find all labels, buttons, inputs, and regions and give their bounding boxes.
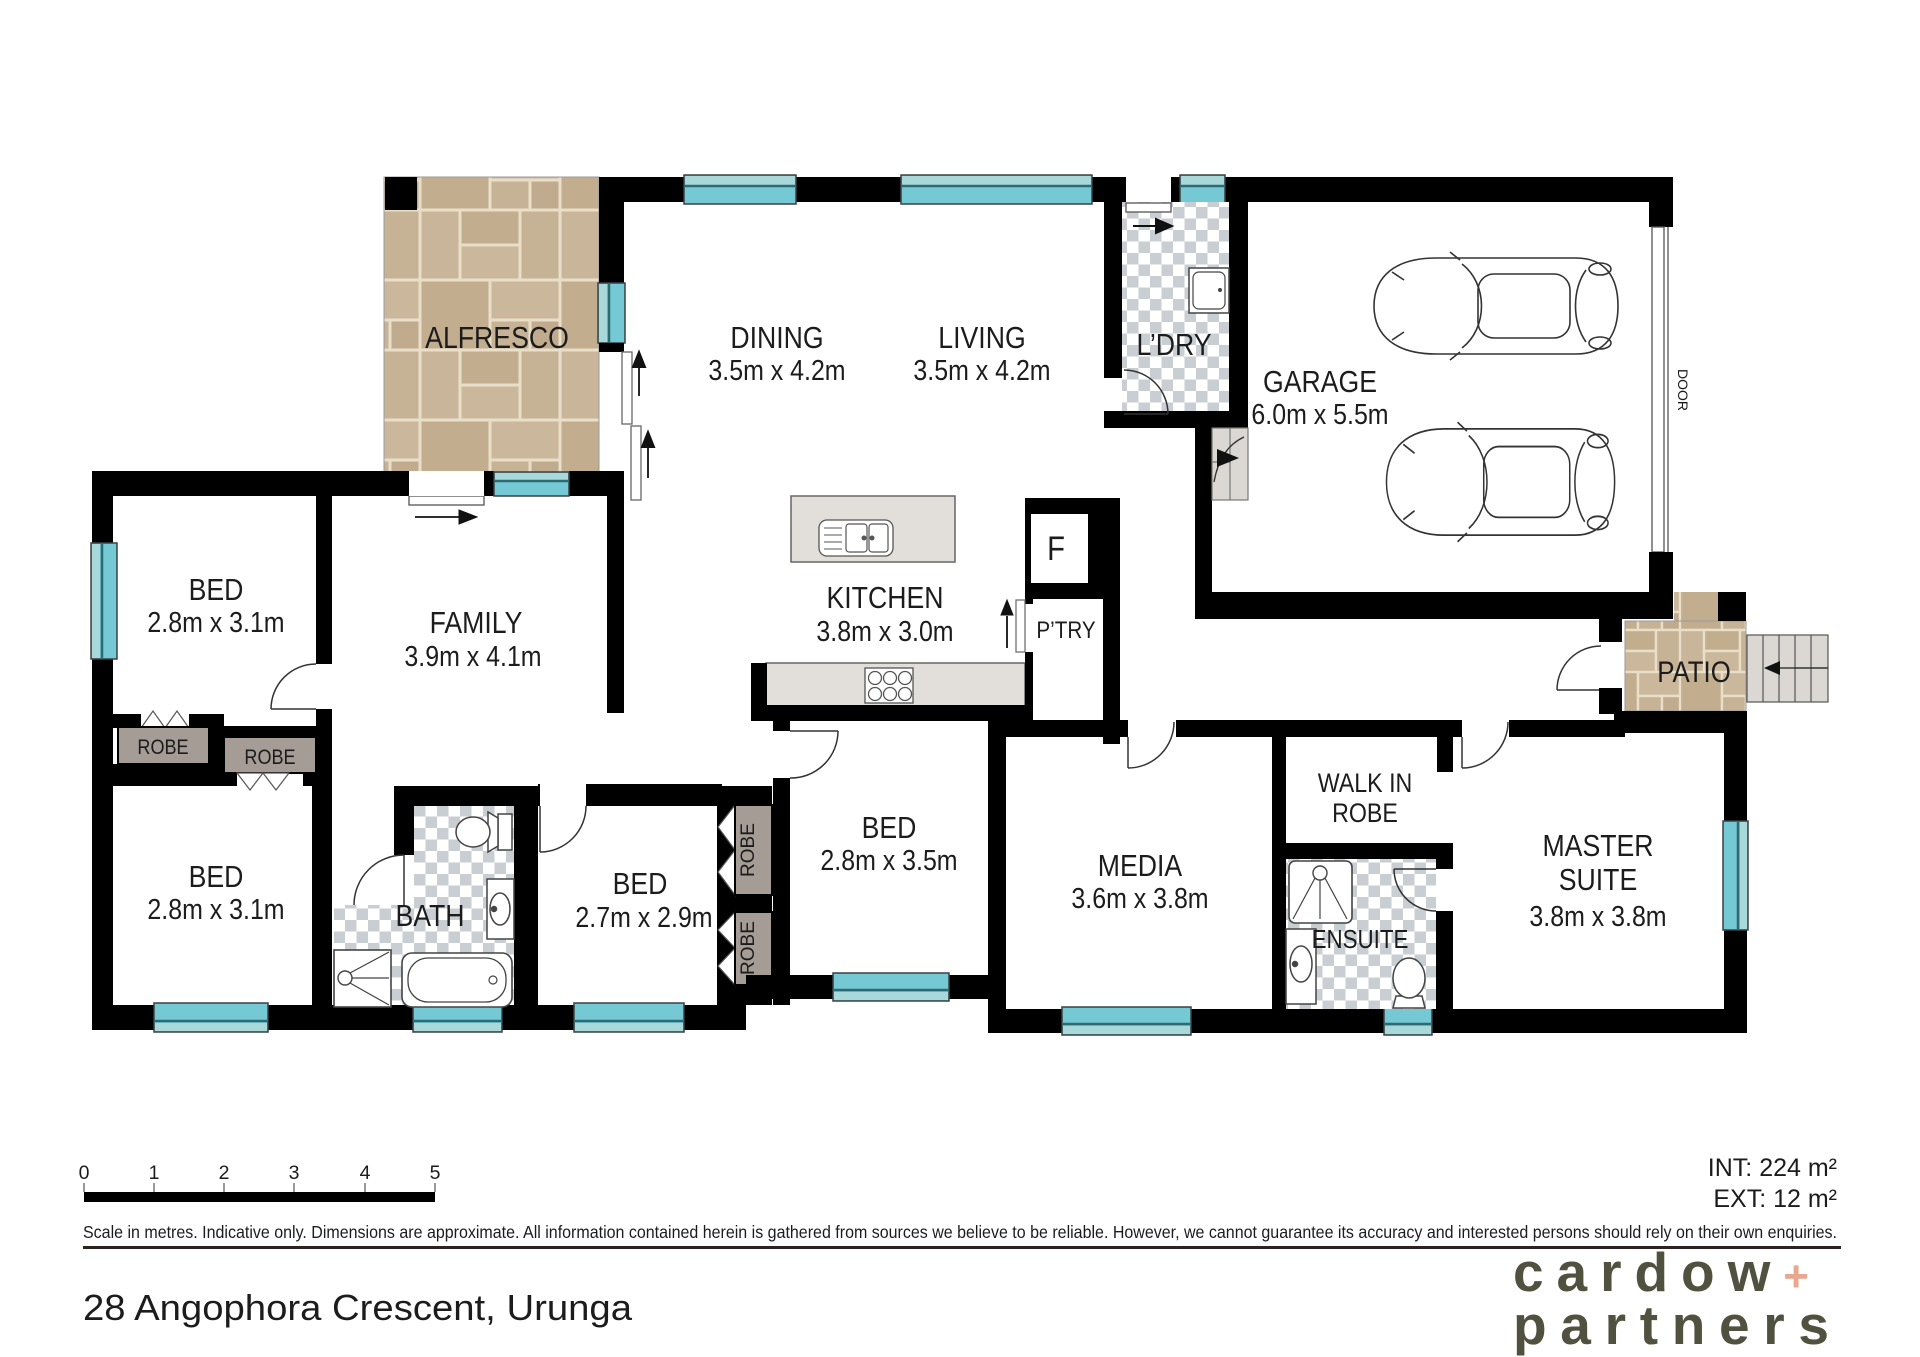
svg-text:5: 5 [430, 1162, 441, 1184]
svg-text:2: 2 [219, 1162, 230, 1184]
svg-text:SUITE: SUITE [1559, 863, 1637, 897]
svg-text:DOOR: DOOR [1675, 369, 1691, 411]
svg-text:3.5m x 4.2m: 3.5m x 4.2m [913, 354, 1050, 386]
svg-text:ALFRESCO: ALFRESCO [425, 321, 569, 355]
svg-text:ROBE: ROBE [137, 736, 188, 760]
svg-text:FAMILY: FAMILY [430, 606, 523, 640]
svg-text:2.8m x 3.1m: 2.8m x 3.1m [147, 893, 284, 925]
svg-text:1: 1 [149, 1162, 160, 1184]
svg-text:MASTER: MASTER [1542, 829, 1653, 863]
svg-text:3.6m x 3.8m: 3.6m x 3.8m [1071, 882, 1208, 914]
svg-text:LIVING: LIVING [938, 321, 1025, 355]
svg-text:3.5m x 4.2m: 3.5m x 4.2m [708, 354, 845, 386]
svg-text:ROBE: ROBE [738, 921, 759, 975]
svg-text:MEDIA: MEDIA [1098, 849, 1183, 883]
svg-text:ROBE: ROBE [1332, 798, 1398, 828]
svg-text:P’TRY: P’TRY [1036, 617, 1095, 644]
svg-text:3.9m x 4.1m: 3.9m x 4.1m [404, 640, 541, 672]
svg-text:KITCHEN: KITCHEN [827, 581, 944, 615]
svg-text:WALK IN: WALK IN [1318, 768, 1413, 798]
svg-text:2.8m x 3.1m: 2.8m x 3.1m [147, 606, 284, 638]
svg-text:6.0m x 5.5m: 6.0m x 5.5m [1251, 398, 1388, 430]
svg-text:2.7m x 2.9m: 2.7m x 2.9m [575, 901, 712, 933]
svg-text:Scale in metres. Indicative on: Scale in metres. Indicative only. Dimens… [83, 1222, 1837, 1242]
svg-text:F: F [1047, 529, 1065, 568]
svg-text:PATIO: PATIO [1657, 655, 1731, 688]
svg-text:BATH: BATH [395, 899, 464, 933]
svg-text:EXT: 12 m²: EXT: 12 m² [1713, 1185, 1837, 1213]
svg-text:0: 0 [79, 1162, 90, 1184]
svg-text:DINING: DINING [730, 321, 823, 355]
svg-text:3.8m x 3.8m: 3.8m x 3.8m [1529, 900, 1666, 932]
svg-text:BED: BED [189, 573, 244, 607]
svg-text:3.8m x 3.0m: 3.8m x 3.0m [816, 615, 953, 647]
svg-text:L’DRY: L’DRY [1136, 328, 1211, 362]
svg-text:ROBE: ROBE [738, 823, 759, 877]
svg-text:BED: BED [189, 860, 244, 894]
svg-text:GARAGE: GARAGE [1263, 365, 1377, 399]
svg-text:BED: BED [862, 811, 917, 845]
svg-text:4: 4 [360, 1162, 371, 1184]
svg-text:INT: 224 m²: INT: 224 m² [1708, 1154, 1837, 1182]
svg-text:28 Angophora Crescent, Urunga: 28 Angophora Crescent, Urunga [83, 1287, 633, 1328]
svg-text:ROBE: ROBE [244, 746, 295, 770]
svg-text:BED: BED [613, 867, 668, 901]
svg-text:ENSUITE: ENSUITE [1312, 925, 1409, 954]
svg-text:3: 3 [289, 1162, 300, 1184]
svg-text:2.8m x 3.5m: 2.8m x 3.5m [820, 844, 957, 876]
svg-text:partners: partners [1513, 1294, 1841, 1356]
